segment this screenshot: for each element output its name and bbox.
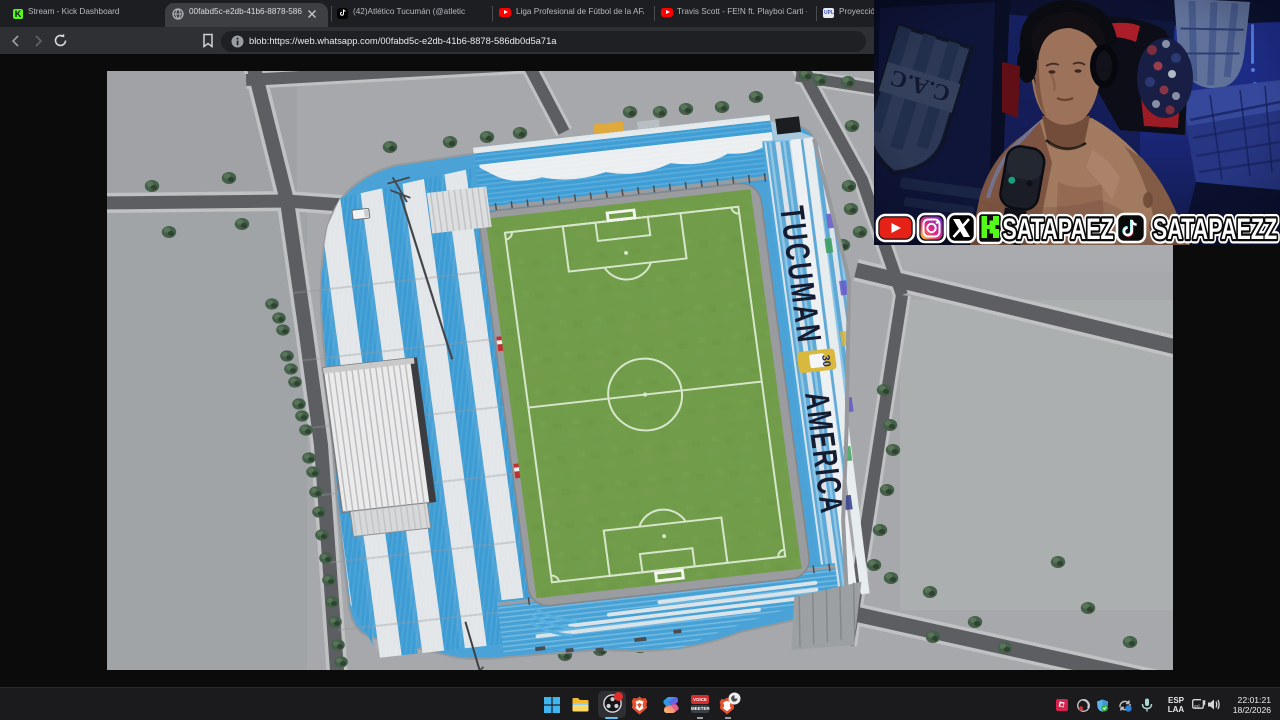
svg-text:SATAPAEZ: SATAPAEZ	[1002, 214, 1113, 246]
svg-text:SATAPAEZZ: SATAPAEZZ	[1153, 214, 1278, 246]
svg-text:30: 30	[819, 354, 833, 367]
svg-text:xxl: xxl	[1194, 703, 1200, 708]
